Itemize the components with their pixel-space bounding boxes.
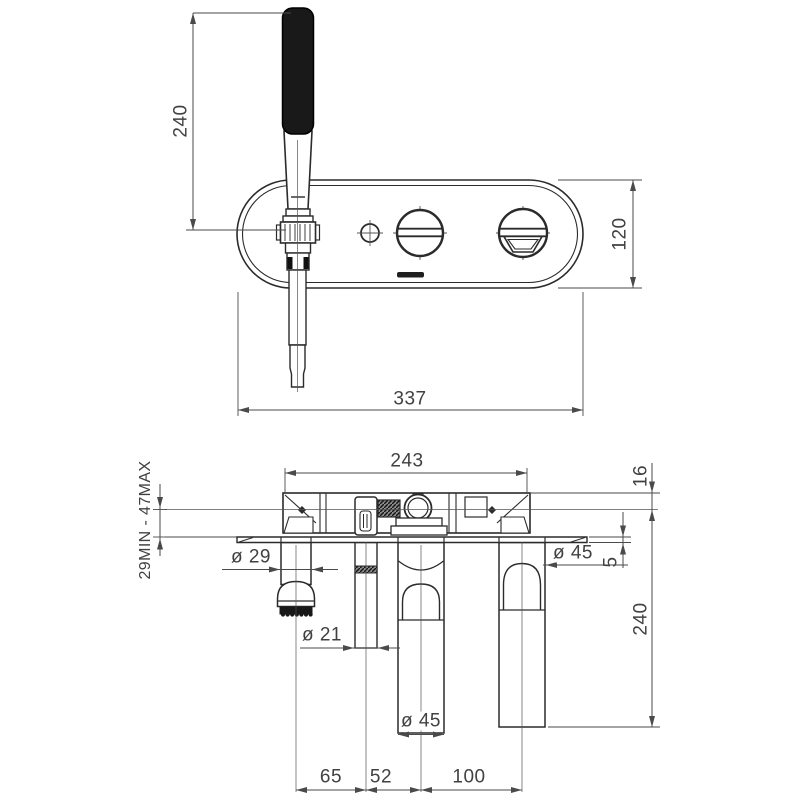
dim-337-plate-width-label: 337	[393, 390, 426, 409]
technical-drawing: 240 120 337 243 29MIN - 47MAX ø 29 ø 21 …	[0, 0, 800, 800]
dim-240-drop-label: 240	[632, 602, 651, 635]
dim-dia-45-handle-label: ø 45	[551, 544, 595, 563]
spout-bracket	[355, 497, 377, 535]
dim-5-label: 5	[602, 556, 621, 567]
coupler-section	[378, 500, 400, 517]
dim-120-plate-height-label: 120	[611, 217, 630, 250]
dim-243-body-width-label: 243	[390, 452, 423, 471]
dim-65-label: 65	[320, 768, 342, 787]
holder-flange	[283, 216, 313, 222]
dim-100-label: 100	[452, 768, 485, 787]
dim-wall-depth-range	[153, 484, 167, 556]
dim-dia-21-label: ø 21	[302, 626, 342, 645]
dim-16-label: 16	[632, 465, 651, 487]
wand-joint	[286, 209, 310, 216]
dim-243-body-width	[285, 468, 527, 494]
dim-wall-depth-range-label: 29MIN - 47MAX	[138, 460, 154, 579]
mixer-body-section	[283, 493, 530, 535]
dim-dia-45-spout-label: ø 45	[399, 712, 443, 731]
wand-handle	[283, 8, 314, 134]
dim-dia-29-label: ø 29	[231, 548, 271, 567]
section-view	[153, 463, 660, 792]
dim-52-label: 52	[370, 768, 392, 787]
front-view	[186, 8, 642, 416]
wall-plate-edge	[237, 537, 587, 543]
hose-connector	[286, 243, 311, 253]
brand-logo	[397, 272, 424, 278]
dim-240-handshower-label: 240	[172, 104, 191, 137]
